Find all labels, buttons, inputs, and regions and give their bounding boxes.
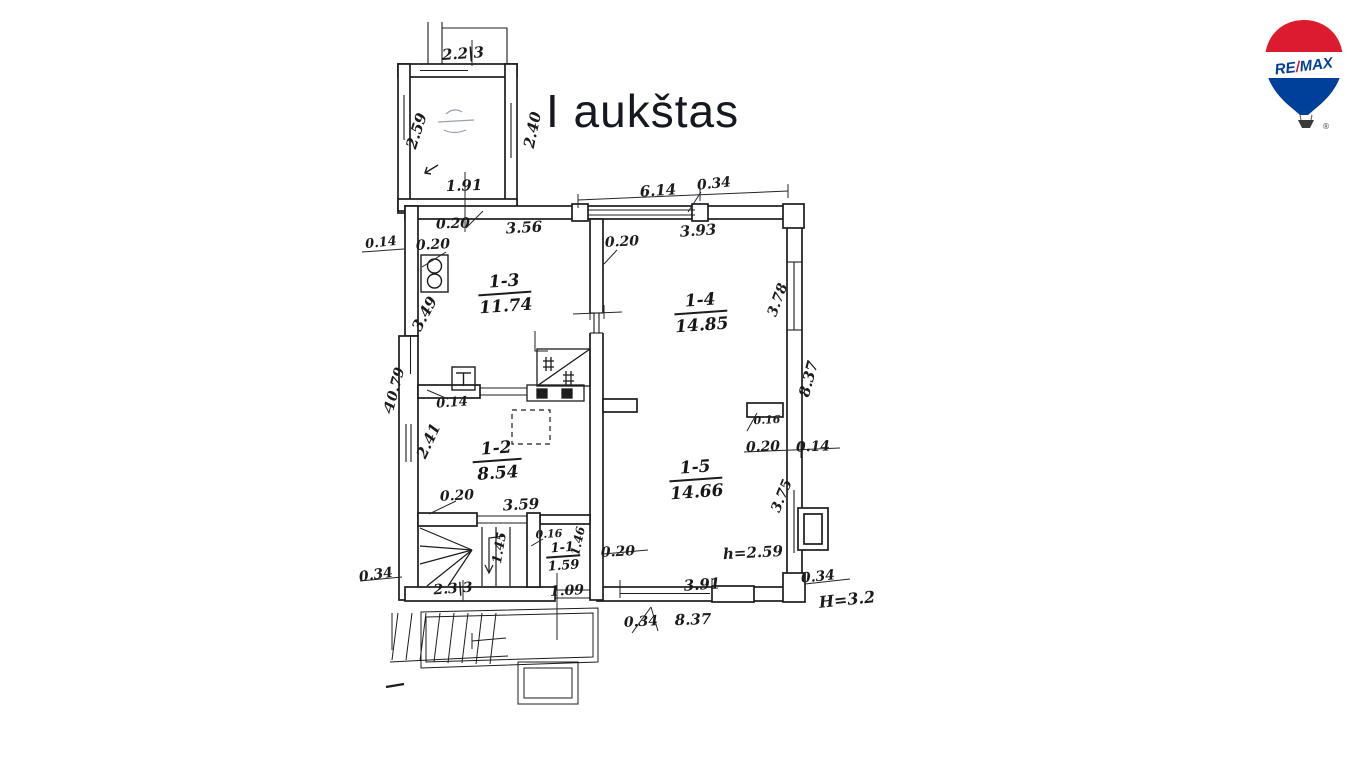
dim-partition-014: 0.14	[436, 395, 469, 410]
dim-stair-359: 3.59	[502, 497, 539, 514]
kitchen-stove-icon	[421, 255, 448, 292]
dim-right-034: 0.34	[800, 568, 835, 585]
room-label-1-3: 1-3 11.74	[477, 270, 533, 319]
page-title: I aukštas	[546, 84, 739, 138]
dim-bottom-391: 3.91	[683, 576, 721, 594]
dim-right-020: 0.20	[746, 439, 781, 454]
dim-partition-top-020: 0.20	[605, 234, 640, 250]
dim-bottom-837: 8.37	[674, 612, 711, 628]
dim-hall-020: 0.20	[601, 544, 636, 560]
dim-right-016: 0.16	[753, 414, 780, 426]
room-label-1-5: 1-5 14.66	[668, 456, 724, 505]
remax-balloon-logo: RE/MAX ®	[1255, 12, 1355, 134]
dim-ceiling-h: h=2.59	[723, 544, 784, 562]
dim-top-393: 3.93	[679, 222, 717, 240]
dim-bottom-233: 2.3|3	[433, 581, 473, 598]
room-label-1-2: 1-2 8.54	[471, 437, 523, 485]
dim-top-614: 6.14	[639, 182, 677, 200]
dim-hall-016: 0.16	[535, 528, 562, 540]
dim-veranda-bottom: 1.91	[445, 178, 482, 194]
balloon-red-band	[1255, 12, 1355, 52]
balloon-blue-band	[1255, 78, 1355, 118]
counter-icon	[527, 349, 590, 401]
dim-hall-109: 1.09	[550, 583, 585, 599]
pencil-notes	[438, 110, 474, 133]
dim-right-014: 0.14	[796, 439, 831, 454]
terrace-exterior-stairs	[386, 608, 598, 704]
dim-left-014: 0.14	[365, 235, 398, 251]
dim-left-020-low: 0.20	[440, 488, 475, 504]
north-arrow	[425, 165, 438, 174]
room-label-1-4: 1-4 14.85	[673, 289, 729, 338]
balloon-basket-icon	[1298, 115, 1314, 128]
dim-left-020-top: 0.20	[416, 237, 451, 253]
dim-veranda-top: 2.2|3	[442, 45, 485, 63]
dim-bottom-034: 0.34	[624, 614, 659, 630]
dim-top-034: 0.34	[696, 175, 731, 192]
registered-mark: ®	[1322, 122, 1330, 131]
dim-veranda-wall: 0.20	[436, 216, 471, 231]
dim-top-356: 3.56	[505, 220, 542, 237]
floor-plan-page: I aukštas RE/MAX ® 1-3 11.74 1-4 14.85 1…	[0, 0, 1365, 768]
